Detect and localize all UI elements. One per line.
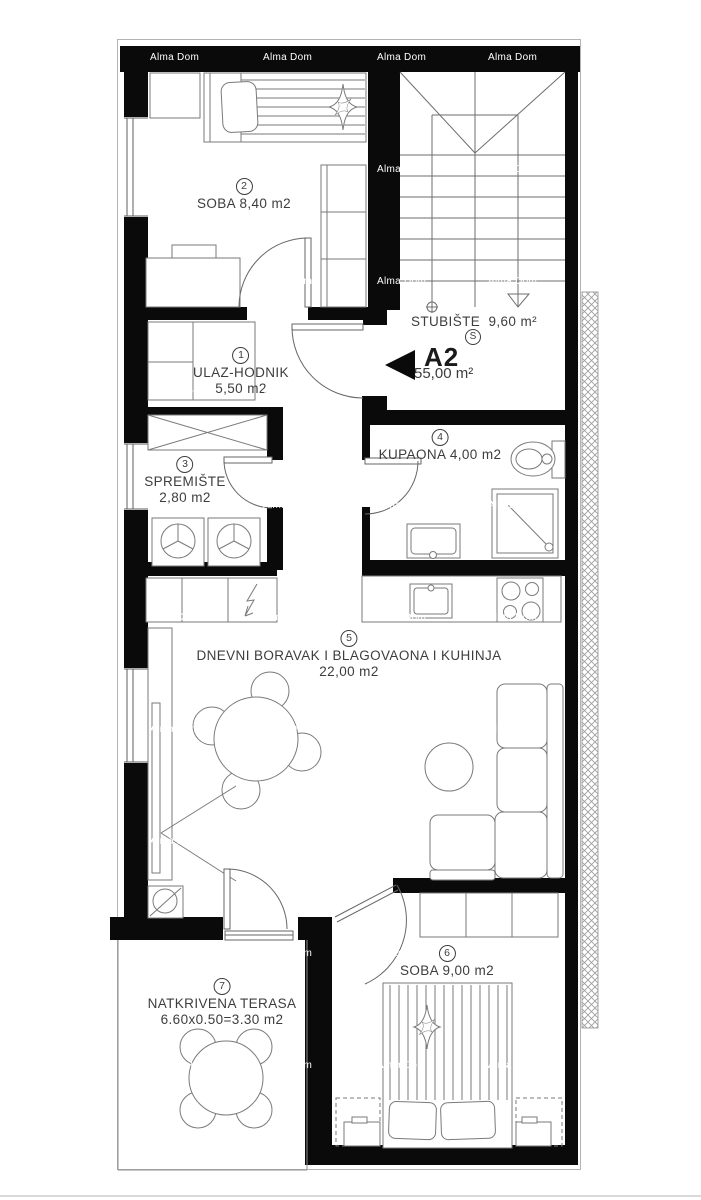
room-number-badge: 3 (177, 456, 194, 473)
desk (146, 245, 240, 307)
room-number-badge: 2 (235, 178, 252, 195)
dining-set (193, 672, 321, 809)
kitchen-counter (362, 576, 561, 622)
room-label-dnevni: 5 DNEVNI BORAVAK I BLAGOVAONA I KUHINJA … (196, 629, 501, 679)
pillow (440, 1101, 495, 1140)
entrance-door (292, 324, 363, 398)
stair-treads (400, 155, 565, 281)
staircase (400, 72, 565, 313)
pillow (388, 1101, 436, 1140)
nightstand-right (516, 1098, 562, 1146)
stove (497, 578, 543, 622)
room-name: KUPAONA 4,00 m2 (379, 447, 502, 462)
storage-shelf (148, 415, 267, 450)
window-soba2 (124, 118, 148, 216)
room-label-ulaz: 1 ULAZ-HODNIK 5,50 m2 (193, 346, 289, 396)
room-area: 2,80 m2 (144, 490, 226, 505)
room-number-badge: 5 (341, 630, 358, 647)
room-label-kupaona: 4 KUPAONA 4,00 m2 (379, 428, 502, 462)
bottom-divider (0, 1195, 701, 1197)
room-number-badge: 4 (432, 429, 449, 446)
cabinet-row (146, 578, 277, 622)
room-area: 22,00 m2 (196, 664, 501, 679)
room-area: 5,50 m2 (193, 381, 289, 396)
room-label-soba2: 2 SOBA 8,40 m2 (197, 177, 291, 211)
stair-flight-diagonals (400, 72, 565, 153)
terrace (118, 940, 307, 1170)
room-number-badge: 1 (232, 347, 249, 364)
terrace-dining-set (180, 1029, 272, 1128)
room-name: ULAZ-HODNIK (193, 365, 289, 380)
room-label-soba6: 6 SOBA 9,00 m2 (400, 944, 494, 978)
unit-area: 55,00 m² (414, 366, 473, 381)
insulation-hatch-strip (582, 292, 598, 1028)
stair-stringers (432, 72, 518, 307)
room-name: DNEVNI BORAVAK I BLAGOVAONA I KUHINJA (196, 648, 501, 663)
staircase-label: STUBIŠTE 9,60 m² (411, 314, 537, 329)
door-spremiste (224, 457, 272, 508)
sink (407, 524, 460, 559)
room-name: NATKRIVENA TERASA (148, 996, 297, 1011)
unit-entry-arrow-icon (385, 350, 415, 380)
washing-machine (208, 518, 260, 566)
wardrobe (420, 893, 558, 937)
room-area: 6.60x0.50=3.30 m2 (148, 1012, 297, 1027)
door-soba6 (335, 885, 406, 984)
shower (492, 489, 558, 558)
floor-unit (148, 886, 183, 918)
nightstand (150, 73, 200, 118)
wardrobe (321, 165, 366, 307)
nightstand-left (336, 1098, 380, 1146)
bed-double (383, 983, 512, 1148)
terrace-table (189, 1041, 263, 1115)
room-number-badge: 7 (214, 978, 231, 995)
room-label-terasa: 7 NATKRIVENA TERASA 6.60x0.50=3.30 m2 (148, 977, 297, 1027)
dining-table (214, 697, 298, 781)
window-living (124, 669, 148, 762)
room-name: SOBA 8,40 m2 (197, 196, 291, 211)
room-soba6-furniture (336, 893, 562, 1148)
bed-single (204, 73, 366, 142)
room-number-badge: 6 (438, 945, 455, 962)
room-name: SOBA 9,00 m2 (400, 963, 494, 978)
door-kupaona (365, 458, 421, 514)
door-soba2 (239, 238, 311, 307)
floor-plan: 2 SOBA 8,40 m2 1 ULAZ-HODNIK 5,50 m2 3 S… (0, 0, 701, 1200)
room-label-spremiste: 3 SPREMIŠTE 2,80 m2 (144, 455, 226, 505)
coffee-table (425, 743, 473, 791)
room-name: SPREMIŠTE (144, 474, 226, 489)
washing-machine (152, 518, 204, 566)
toilet (511, 441, 565, 478)
staircase-symbol-badge: S (465, 329, 481, 345)
pillow (221, 81, 259, 133)
floor-plan-drawing (0, 0, 701, 1200)
